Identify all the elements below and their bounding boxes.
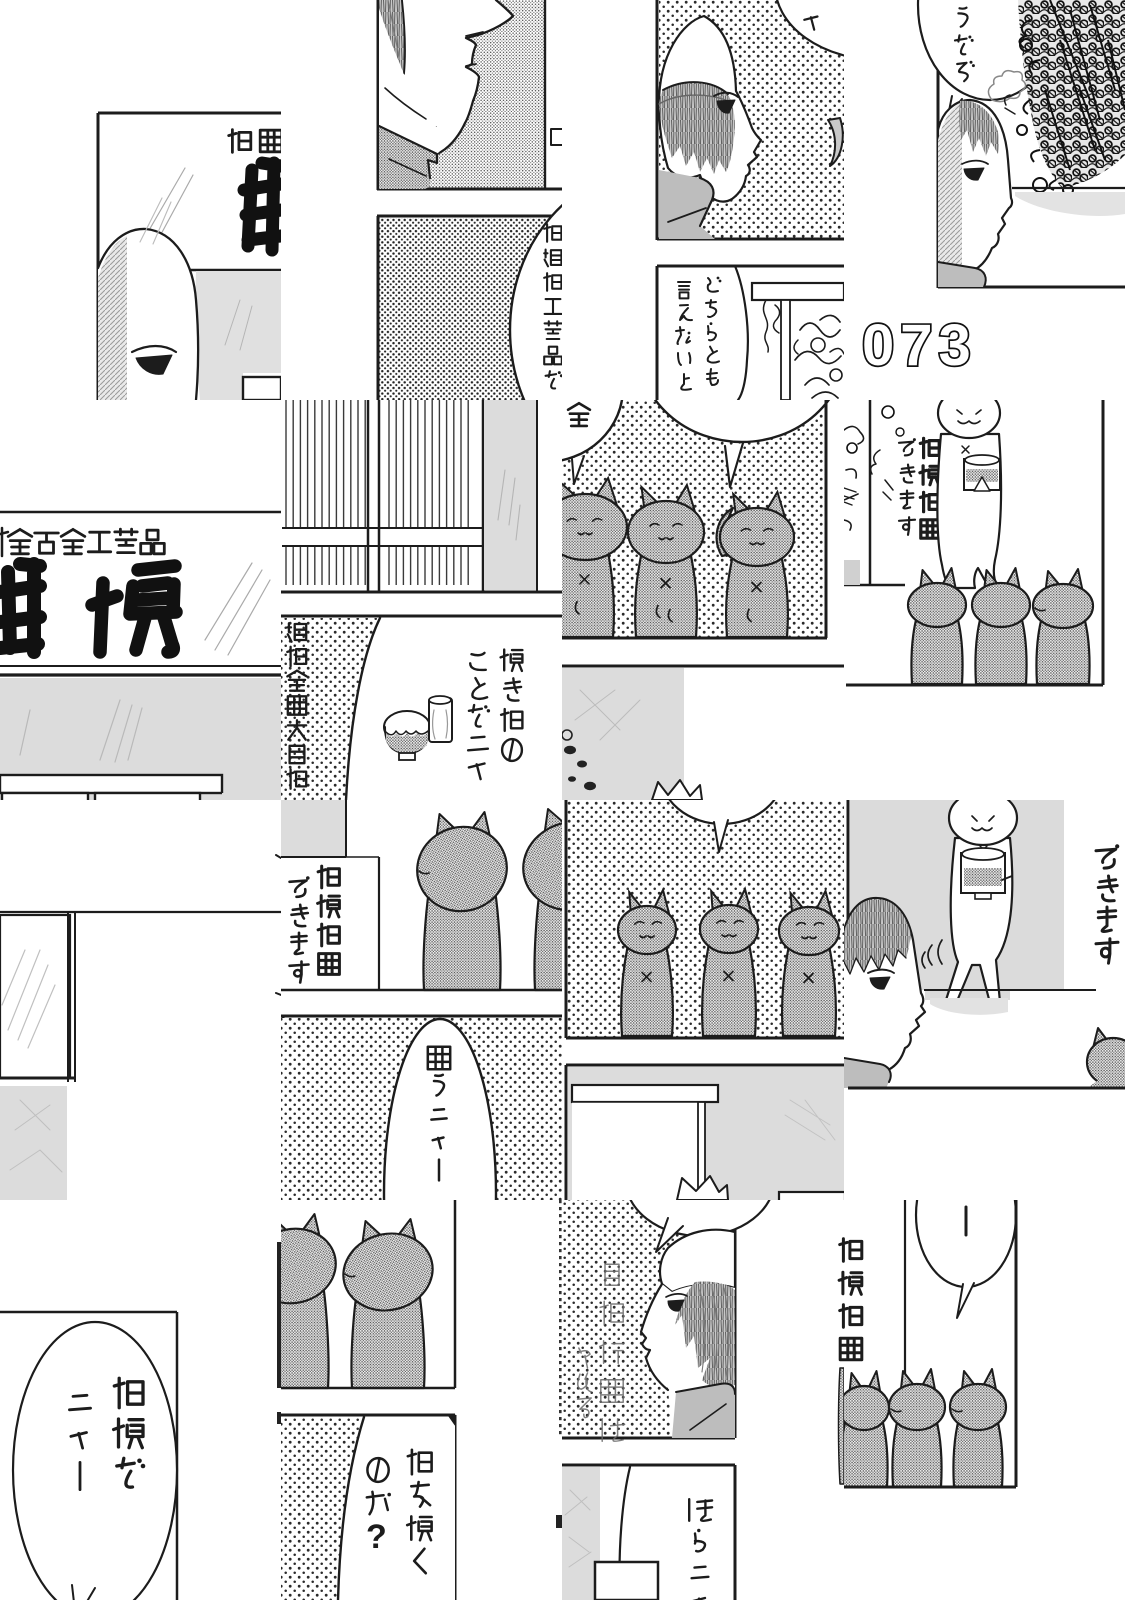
svg-text:?: ? bbox=[366, 1518, 387, 1556]
svg-text:073: 073 bbox=[862, 313, 977, 378]
